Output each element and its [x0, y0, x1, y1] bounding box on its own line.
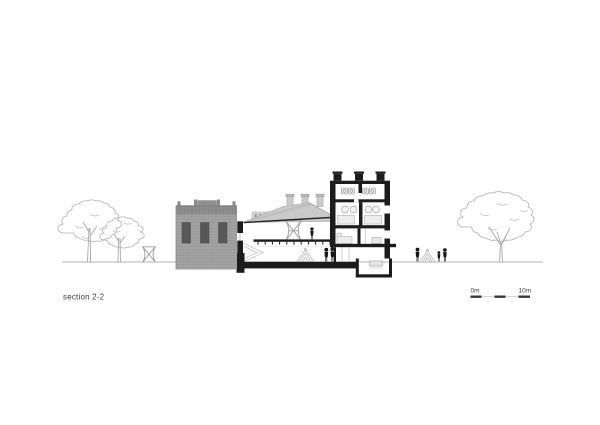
mezzanine-supports: [258, 242, 330, 245]
tower-crenellation: [330, 172, 390, 185]
building-window: [201, 223, 210, 244]
building-window: [182, 223, 191, 244]
person-figure-right-2: [437, 251, 440, 262]
person-figure-right-1: [416, 248, 420, 262]
mezzanine-slab: [254, 239, 334, 241]
person-figure-mezzanine: [310, 227, 313, 239]
lattice-sculpture-mezzanine: [285, 220, 302, 240]
section-label: section 2-2: [63, 293, 105, 302]
lattice-sculpture-left: [142, 247, 156, 262]
section-drawing-canvas: section 2-2 0m 10m: [0, 0, 600, 425]
person-figure-hall-2: [330, 247, 334, 262]
drawing-sheet: section 2-2 0m 10m: [0, 0, 600, 425]
tree-left-large: [58, 200, 122, 262]
tower-left-wall: [330, 184, 336, 247]
tree-left-small: [100, 217, 144, 262]
person-figure-hall-1: [324, 248, 328, 262]
basement-pit: [356, 259, 392, 278]
tower-middle-floor: [336, 202, 385, 228]
scale-end-label: 10m: [519, 288, 532, 295]
hall-interior-linework: [244, 244, 332, 262]
hall-left-wall-upper: [237, 221, 243, 233]
scale-start-label: 0m: [471, 288, 480, 295]
building-windows: [182, 223, 227, 244]
scale-bar: 0m 10m: [471, 288, 532, 298]
tree-right: [457, 192, 533, 262]
tent-figure-hall: [297, 248, 314, 261]
building-window: [219, 223, 228, 244]
tower-ground-level: [334, 247, 349, 262]
person-figure-right-3: [443, 248, 447, 261]
tower-top-floor: [336, 184, 385, 202]
tower-right-wall: [385, 184, 391, 259]
gray-building-elevation: [176, 200, 237, 270]
tower-section: [330, 172, 396, 263]
parapet-center-block: [198, 201, 217, 206]
tent-figure-right: [421, 249, 435, 261]
hall-left-wall-lower: [237, 241, 243, 254]
hall-floor-slab: [243, 262, 356, 269]
